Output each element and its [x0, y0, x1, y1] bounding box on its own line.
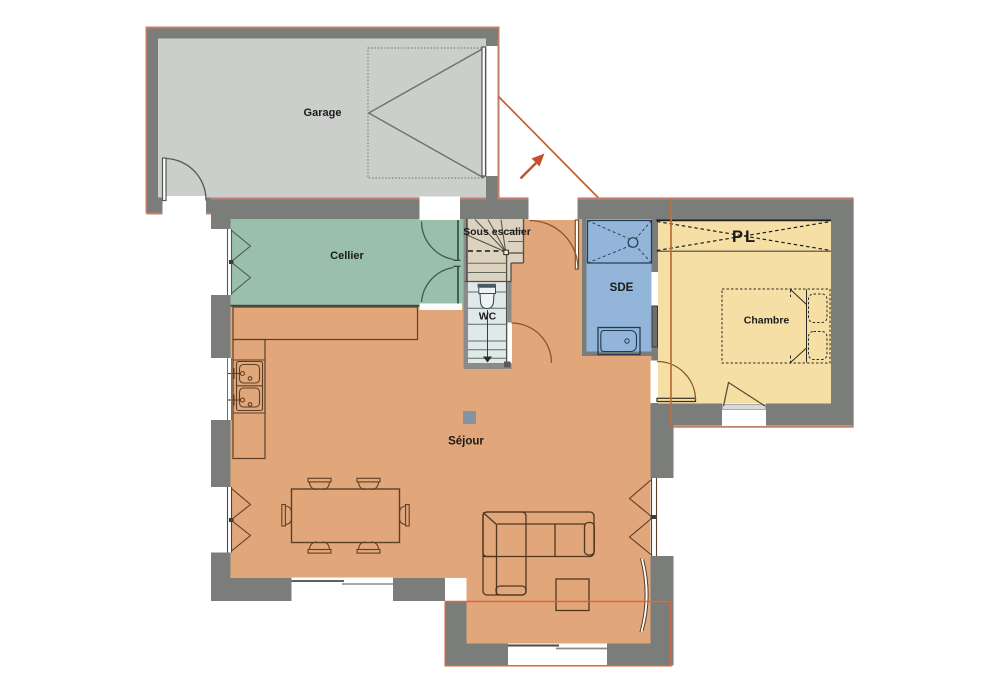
svg-text:Garage: Garage — [304, 107, 342, 119]
svg-text:WC: WC — [479, 311, 497, 323]
svg-text:Cellier: Cellier — [330, 250, 364, 262]
svg-text:SDE: SDE — [610, 282, 634, 294]
svg-text:Sous escalier: Sous escalier — [463, 226, 531, 238]
svg-text:Chambre: Chambre — [744, 315, 790, 327]
svg-text:PL: PL — [732, 228, 757, 246]
svg-text:Séjour: Séjour — [448, 436, 484, 448]
